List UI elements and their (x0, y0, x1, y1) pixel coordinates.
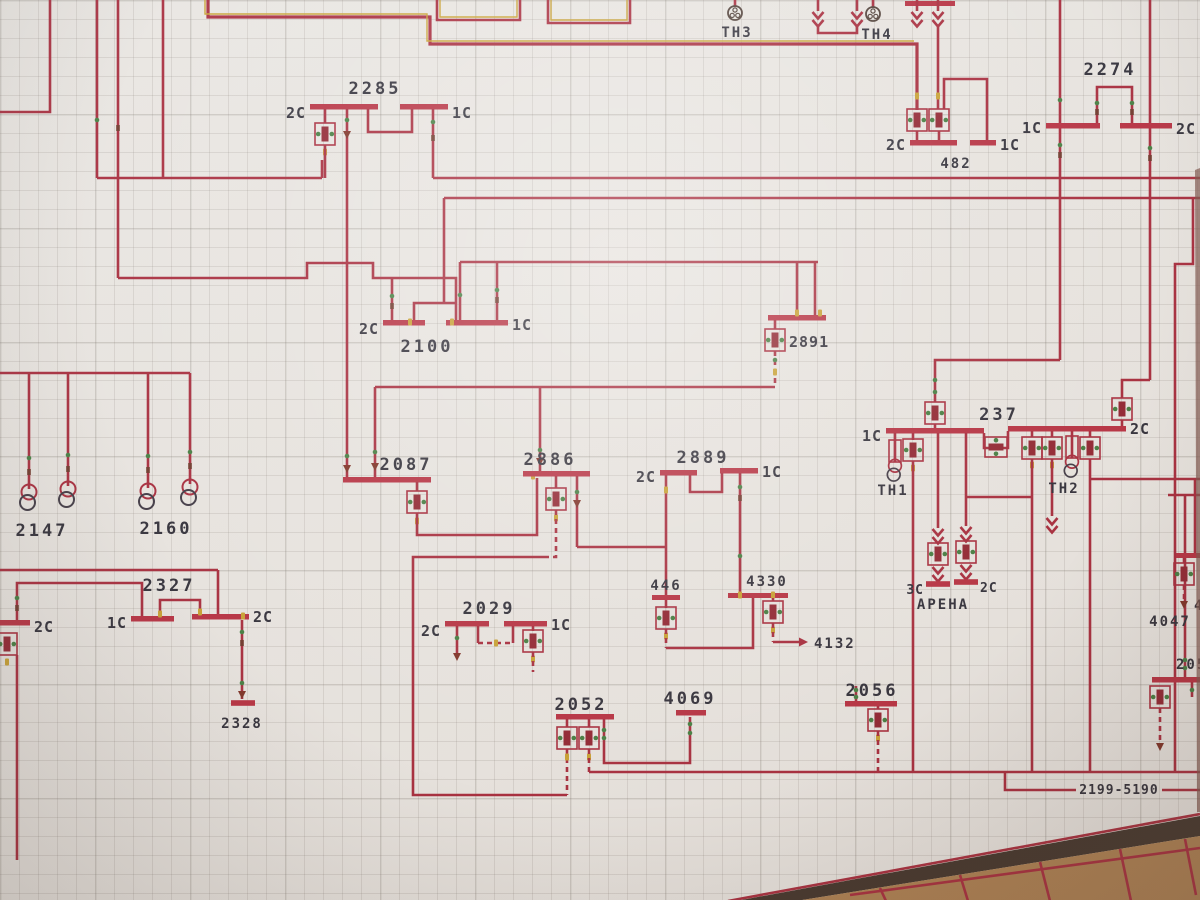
breaker-2087 (407, 491, 427, 513)
label-237-2c: 2С (1130, 420, 1150, 438)
label-2891: 2891 (789, 333, 829, 351)
breaker-237-feed-right (1112, 398, 1132, 420)
block-446: 446 (650, 578, 753, 648)
breaker-482-b (929, 109, 949, 131)
label-4132: 4132 (814, 636, 856, 652)
label-2327: 2327 (143, 576, 196, 596)
block-2056: 2056 (845, 681, 898, 772)
bus-2274: 2274 1С 2С (1022, 0, 1196, 380)
label-2160: 2160 (140, 519, 193, 539)
label-drawing-number: 2199-5190 (1079, 783, 1158, 798)
label-2055: 2055 (1176, 657, 1200, 673)
label-2327-2c: 2С (253, 608, 273, 626)
label-2285: 2285 (349, 79, 402, 99)
label-482-2c: 2С (886, 136, 906, 154)
breaker-237-c (1042, 437, 1062, 459)
label-2087: 2087 (380, 455, 433, 475)
label-2886: 2886 (524, 450, 577, 470)
th3-transformer-icon (728, 6, 742, 20)
label-2274-1c: 1С (1022, 119, 1042, 137)
label-arena-3c: 3С (906, 583, 924, 598)
label-2274: 2274 (1084, 60, 1137, 80)
th4-transformer-icon (866, 7, 880, 21)
label-4330: 4330 (746, 574, 788, 590)
label-th2: ТН2 (1048, 481, 1079, 497)
label-482: 482 (940, 156, 971, 172)
breaker-2056 (868, 709, 888, 731)
label-2056: 2056 (846, 681, 899, 701)
left-transformers: 2147 2160 (0, 373, 198, 541)
bus-2891: 2891 (765, 262, 829, 387)
label-4069: 4069 (664, 689, 717, 709)
label-446: 446 (650, 578, 681, 594)
label-2328: 2328 (221, 716, 263, 732)
breaker-left-2c (0, 633, 17, 655)
label-2100-1c: 1С (512, 316, 532, 334)
bus-2029: 2029 2С 1С (421, 599, 571, 672)
terminal-arena-2c (954, 579, 978, 585)
label-2889: 2889 (677, 448, 730, 468)
breaker-arena-2c (956, 541, 976, 563)
breaker-2029 (523, 630, 543, 652)
breaker-2891 (765, 329, 785, 351)
label-2052: 2052 (555, 695, 608, 715)
breaker-482-a (907, 109, 927, 131)
right-edge-lines (1175, 198, 1193, 772)
long-feeder-lines (97, 160, 1200, 322)
label-2285-2c: 2С (286, 104, 306, 122)
top-left-lines (0, 0, 163, 278)
bus-482: 2С 482 1С (886, 79, 1020, 172)
label-arena: АРЕНА (917, 597, 969, 613)
label-2029: 2029 (463, 599, 516, 619)
arrow-to-4132-icon (799, 638, 808, 647)
breaker-237-b (1022, 437, 1042, 459)
block-4330: 4330 4132 (728, 574, 856, 652)
label-2100: 2100 (401, 337, 454, 357)
mimic-board-photo: ТН3 ТН4 2С 482 1С (0, 0, 1200, 900)
label-2029-1c: 1С (551, 616, 571, 634)
top-transformer-bays: ТН3 ТН4 (437, 0, 955, 109)
breaker-arena-3c (928, 543, 948, 565)
label-237-1c: 1С (862, 427, 882, 445)
label-2889-1c: 1С (762, 463, 782, 481)
terminal-2328 (231, 700, 255, 706)
label-237: 237 (979, 405, 1019, 425)
bus-2100: 2С 1С 2100 (359, 278, 532, 357)
breaker-237-feed-left (925, 402, 945, 424)
label-2274-2c: 2С (1176, 120, 1196, 138)
breaker-2052-b (579, 727, 599, 749)
breaker-4330 (763, 601, 783, 623)
breaker-2055 (1150, 686, 1170, 708)
block-4069: 4069 (664, 689, 717, 716)
bus-237: 237 1С 2С ТН1 3С (862, 360, 1200, 772)
breaker-2052-a (557, 727, 577, 749)
bus-2087: 2087 (343, 455, 537, 535)
label-2327-1c: 1С (107, 614, 127, 632)
label-2147: 2147 (16, 521, 69, 541)
label-th4: ТН4 (861, 27, 892, 43)
label-2100-2c: 2С (359, 320, 379, 338)
bottom-lines: 2199-5190 (589, 772, 1200, 798)
label-482-1c: 1С (1000, 136, 1020, 154)
label-2285-1c: 1С (452, 104, 472, 122)
breaker-2285 (315, 123, 335, 145)
bus-2327: 2327 1С 2С 2С 2328 (0, 570, 273, 860)
breaker-237-a (903, 439, 923, 461)
label-4047: 4047 (1149, 614, 1191, 630)
label-th1: ТН1 (877, 483, 908, 499)
label-2889-2c: 2С (636, 468, 656, 486)
schematic-svg: ТН3 ТН4 2С 482 1С (0, 0, 1200, 900)
label-th3: ТН3 (721, 25, 752, 41)
label-leftbus-2c: 2С (34, 618, 54, 636)
breaker-2886 (546, 488, 566, 510)
terminal-arena-3c (926, 581, 950, 587)
label-arena-2c: 2С (980, 581, 998, 596)
top-feeder-line (205, 0, 917, 110)
breaker-446 (656, 607, 676, 629)
breaker-237-d (1080, 437, 1100, 459)
label-2029-2c: 2С (421, 622, 441, 640)
